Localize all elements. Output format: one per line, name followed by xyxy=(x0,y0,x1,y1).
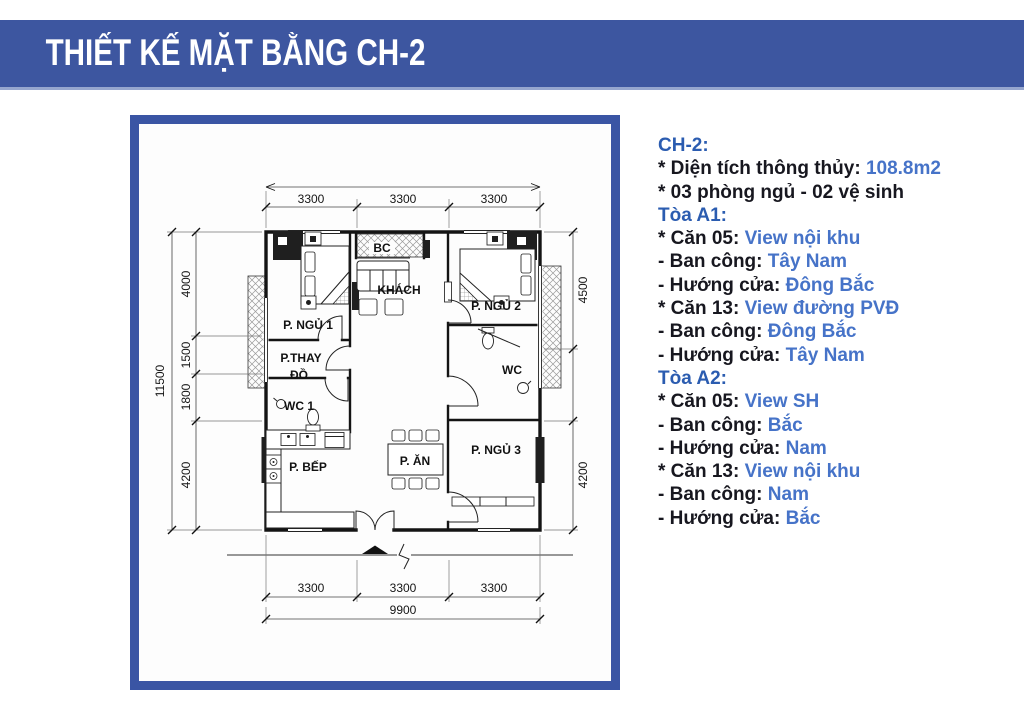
spec-line: - Ban công: Bắc xyxy=(658,414,1008,437)
dim-bottom-1: 3300 xyxy=(298,581,325,595)
dim-left-4: 4200 xyxy=(179,461,193,488)
dim-right-2: 4200 xyxy=(576,461,590,488)
room-label-kitchen: P. BẾP xyxy=(289,459,327,474)
spec-line: * 03 phòng ngủ - 02 vệ sinh xyxy=(658,181,1008,204)
unit-details-panel: CH-2: * Diện tích thông thủy: 108.8m2 * … xyxy=(658,134,1008,530)
spec-line: - Hướng cửa: Bắc xyxy=(658,507,1008,530)
spec-line: - Ban công: Tây Nam xyxy=(658,250,1008,273)
room-label-wc2: WC xyxy=(502,363,522,377)
room-label-wc1: WC 1 xyxy=(284,399,314,413)
dim-top-1: 3300 xyxy=(298,192,325,206)
room-label-dressing-2: ĐỒ xyxy=(290,367,308,382)
wc2-fixtures xyxy=(478,328,531,394)
dim-bottom-3: 3300 xyxy=(481,581,508,595)
doors xyxy=(318,282,478,530)
bedroom3-dresser xyxy=(452,497,534,506)
entry-arrow-icon xyxy=(362,546,388,555)
room-label-dining: P. ĂN xyxy=(400,453,430,468)
dim-left-1: 4000 xyxy=(179,270,193,297)
dim-left-2: 1500 xyxy=(179,341,193,368)
room-label-balcony: BC xyxy=(373,241,391,255)
spec-line: * Căn 13: View đường PVĐ xyxy=(658,297,1008,320)
spec-line: - Hướng cửa: Nam xyxy=(658,437,1008,460)
kitchen-counter xyxy=(266,430,354,528)
room-label-living: KHÁCH xyxy=(377,282,420,297)
spec-line: CH-2: xyxy=(658,134,1008,157)
dim-bottom-total: 9900 xyxy=(390,603,417,617)
title-banner: THIẾT KẾ MẶT BẰNG CH-2 xyxy=(0,20,1024,90)
dim-top-3: 3300 xyxy=(481,192,508,206)
spec-line: * Căn 05: View nội khu xyxy=(658,227,1008,250)
dim-bottom-2: 3300 xyxy=(390,581,417,595)
room-label-bedroom1: P. NGỦ 1 xyxy=(283,317,333,332)
dim-left-total: 11500 xyxy=(153,364,167,397)
dim-top-2: 3300 xyxy=(390,192,417,206)
ground-line xyxy=(227,544,573,569)
spec-line: Tòa A1: xyxy=(658,204,1008,227)
dim-left-3: 1800 xyxy=(179,383,193,410)
room-label-dressing-1: P.THAY xyxy=(280,351,321,365)
floorplan-drawing: 3300 3300 3300 11500 4000 1500 1800 4200… xyxy=(139,124,611,681)
spec-line: * Diện tích thông thủy: 108.8m2 xyxy=(658,157,1008,180)
spec-line: * Căn 13: View nội khu xyxy=(658,460,1008,483)
floorplan-frame: 3300 3300 3300 11500 4000 1500 1800 4200… xyxy=(130,115,620,690)
room-label-bedroom2: P. NGỦ 2 xyxy=(471,298,521,313)
page-title: THIẾT KẾ MẶT BẰNG CH-2 xyxy=(0,20,819,86)
spec-line: - Ban công: Đông Bắc xyxy=(658,320,1008,343)
spec-line: Tòa A2: xyxy=(658,367,1008,390)
room-label-bedroom3: P. NGỦ 3 xyxy=(471,442,521,457)
dim-right-1: 4500 xyxy=(576,276,590,303)
bed1 xyxy=(301,232,349,309)
spec-line: - Hướng cửa: Tây Nam xyxy=(658,344,1008,367)
spec-line: * Căn 05: View SH xyxy=(658,390,1008,413)
spec-line: - Hướng cửa: Đông Bắc xyxy=(658,274,1008,297)
spec-line: - Ban công: Nam xyxy=(658,483,1008,506)
